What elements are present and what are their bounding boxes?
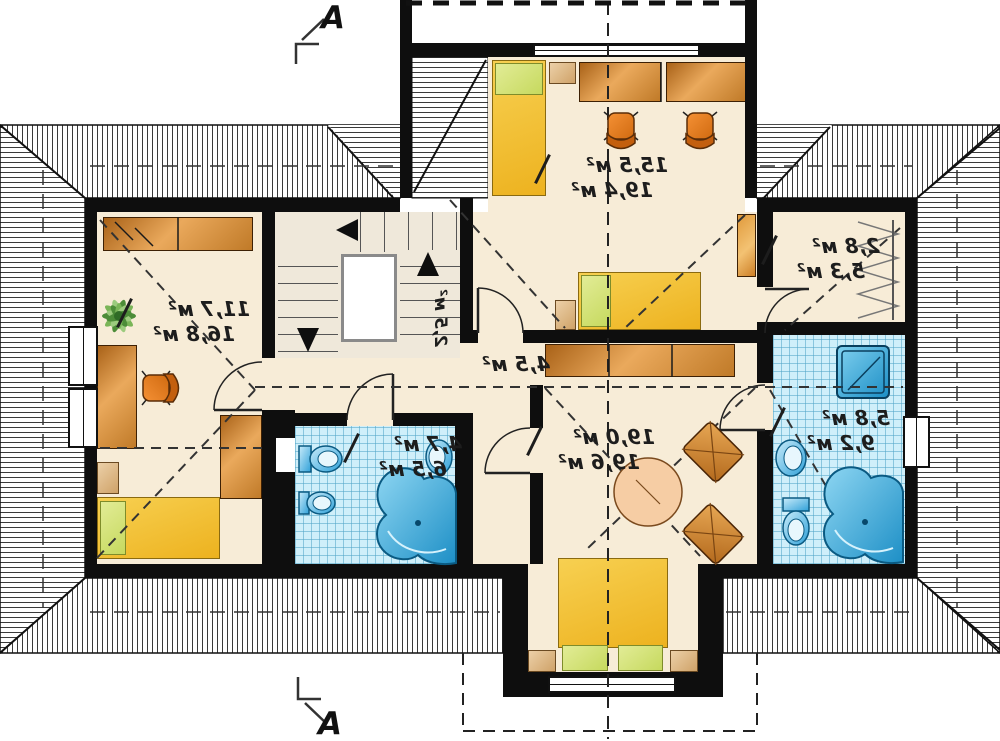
area-floor: 2,8 м² xyxy=(780,234,880,259)
bidet xyxy=(299,492,335,514)
office-chair xyxy=(683,112,717,149)
terrace-outline-dashed xyxy=(463,653,757,731)
armchair xyxy=(682,503,744,565)
floor-plan: 11,7 м² 16,8 м² 15,5 м² 19,4 м² 2,8 м² 5… xyxy=(0,0,1000,741)
section-marker-top xyxy=(296,19,324,64)
door-center-bedroom xyxy=(485,428,530,473)
area-total: 5,3 м² xyxy=(780,259,865,284)
room-label-hall: 4,5 м² xyxy=(450,352,550,377)
area-total: 19,6 м² xyxy=(545,450,640,475)
room-label-closet: 2,8 м² 5,3 м² xyxy=(780,234,880,284)
area-total: 19,4 м² xyxy=(553,178,653,203)
toilet xyxy=(299,446,342,472)
office-chair xyxy=(142,371,179,405)
area-floor: 4,7 м² xyxy=(362,432,462,457)
section-letter-top: A xyxy=(321,0,345,36)
area-total: 16,8 м² xyxy=(135,322,235,347)
area-floor: 15,5 м² xyxy=(553,153,668,178)
section-letter-bottom: A xyxy=(318,706,342,741)
area-total: 6,5 м² xyxy=(362,457,447,482)
toilet xyxy=(783,498,809,545)
room-label-staircase: 2,5 м² xyxy=(430,277,450,347)
room-label-top-bedroom: 15,5 м² 19,4 м² xyxy=(553,153,668,203)
door-bathroom-middle xyxy=(347,374,393,420)
area-floor: 2,5 м² xyxy=(430,290,450,347)
area-total: 9,2 м² xyxy=(788,431,875,456)
area-floor: 4,5 м² xyxy=(450,352,550,377)
area-floor: 11,7 м² xyxy=(135,297,250,322)
corner-bathtub xyxy=(824,467,903,563)
shower-glass xyxy=(842,351,884,393)
room-label-bathroom-right: 5,8 м² 9,2 м² xyxy=(788,406,890,456)
stair-direction-arrows xyxy=(297,219,439,352)
potted-plant xyxy=(102,298,136,333)
room-label-bathroom-middle: 4,7 м² 6,5 м² xyxy=(362,432,462,482)
door-left-bedroom xyxy=(214,362,262,410)
room-label-center-bedroom: 19,0 м² 19,6 м² xyxy=(545,425,655,475)
door-closet xyxy=(765,289,809,333)
area-floor: 5,8 м² xyxy=(788,406,890,431)
office-chair xyxy=(604,112,638,149)
door-top-bedroom xyxy=(478,288,523,333)
corner-bathtub xyxy=(377,468,456,564)
door-bathroom-right xyxy=(720,385,765,430)
room-label-left-bedroom: 11,7 м² 16,8 м² xyxy=(135,297,250,347)
area-floor: 19,0 м² xyxy=(545,425,655,450)
